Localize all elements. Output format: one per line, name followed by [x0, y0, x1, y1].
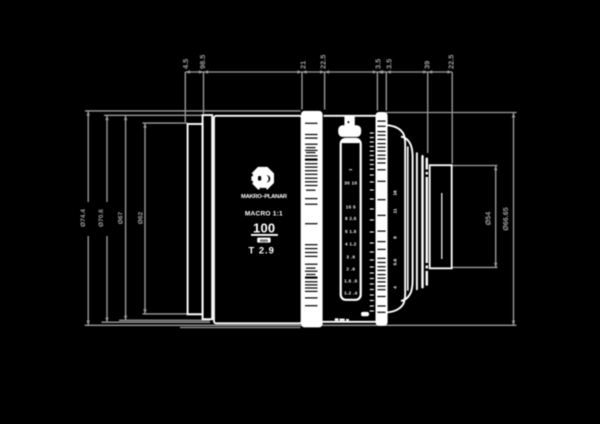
svg-text:4.5: 4.5: [181, 59, 190, 69]
svg-text:16: 16: [393, 190, 399, 196]
svg-text:11: 11: [393, 208, 399, 213]
svg-text:8: 8: [393, 236, 399, 239]
svg-text:21: 21: [299, 61, 308, 69]
svg-text:mm: mm: [260, 238, 268, 243]
svg-text:2 .6: 2 .6: [346, 267, 355, 272]
svg-text:39: 39: [423, 61, 432, 69]
svg-text:4 1.2: 4 1.2: [345, 242, 357, 247]
svg-text:15 5: 15 5: [346, 205, 356, 210]
svg-text:8 2.5: 8 2.5: [345, 216, 357, 221]
svg-text:1.5 .5: 1.5 .5: [344, 279, 357, 284]
svg-text:Ø54: Ø54: [483, 212, 492, 226]
svg-text:1.2 .4: 1.2 .4: [344, 291, 357, 296]
svg-text:5 1.5: 5 1.5: [345, 229, 357, 234]
svg-text:22.5: 22.5: [319, 55, 328, 69]
svg-text:5.6: 5.6: [393, 258, 399, 265]
svg-text:3 .9: 3 .9: [346, 255, 355, 260]
svg-text:98.5: 98.5: [198, 55, 207, 69]
svg-text:Ø67: Ø67: [117, 211, 124, 224]
svg-text:Ø66.65: Ø66.65: [501, 207, 510, 231]
svg-text:100: 100: [253, 221, 275, 236]
svg-text:MAKRO–PLANAR: MAKRO–PLANAR: [241, 194, 288, 200]
svg-text:4: 4: [393, 286, 399, 289]
svg-text:MACRO 1:1: MACRO 1:1: [245, 211, 283, 218]
svg-text:30 10: 30 10: [344, 181, 357, 186]
svg-text:∞: ∞: [349, 167, 353, 172]
svg-text:Ø74.4: Ø74.4: [80, 209, 87, 227]
svg-text:Ø70.6: Ø70.6: [98, 209, 105, 227]
svg-text:Ø62: Ø62: [138, 211, 145, 224]
svg-text:T 2.9: T 2.9: [249, 245, 275, 256]
svg-text:22.5: 22.5: [447, 55, 456, 69]
svg-text:3.5: 3.5: [385, 59, 394, 69]
svg-text:3.5: 3.5: [374, 59, 383, 69]
